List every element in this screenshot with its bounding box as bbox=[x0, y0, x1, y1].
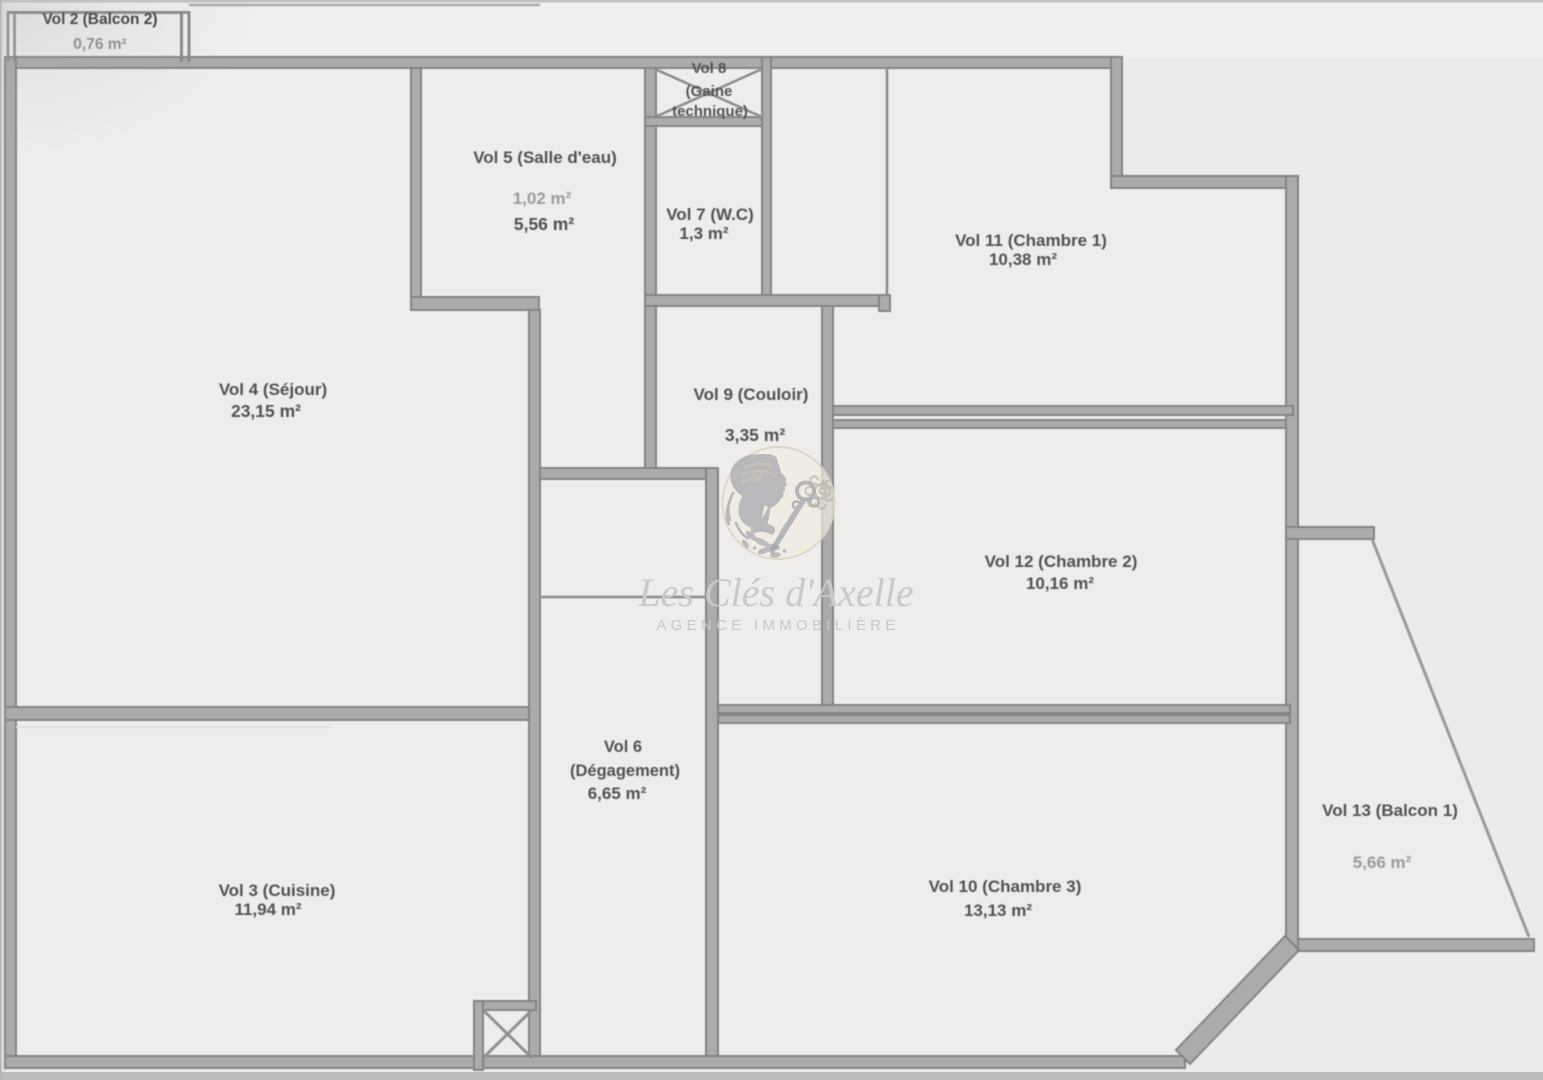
svg-text:Vol 11 (Chambre 1): Vol 11 (Chambre 1) bbox=[955, 231, 1107, 250]
svg-text:Vol 13 (Balcon 1): Vol 13 (Balcon 1) bbox=[1322, 801, 1458, 820]
svg-text:Vol 5 (Salle d'eau): Vol 5 (Salle d'eau) bbox=[473, 148, 617, 167]
svg-text:Vol 12 (Chambre 2): Vol 12 (Chambre 2) bbox=[985, 552, 1138, 571]
svg-text:3,35 m²: 3,35 m² bbox=[725, 425, 785, 445]
svg-text:Vol 4 (Séjour): Vol 4 (Séjour) bbox=[219, 380, 327, 399]
svg-text:(Gaine: (Gaine bbox=[686, 83, 733, 100]
svg-text:Vol 7 (W.C): Vol 7 (W.C) bbox=[666, 205, 754, 224]
svg-text:11,94 m²: 11,94 m² bbox=[234, 900, 301, 919]
svg-text:5,56 m²: 5,56 m² bbox=[514, 214, 574, 234]
svg-text:23,15 m²: 23,15 m² bbox=[231, 401, 301, 421]
svg-text:Vol 9 (Couloir): Vol 9 (Couloir) bbox=[694, 385, 809, 404]
svg-text:Les Clés d'Axelle: Les Clés d'Axelle bbox=[637, 570, 913, 615]
svg-text:Vol 8: Vol 8 bbox=[692, 60, 727, 77]
svg-text:13,13 m²: 13,13 m² bbox=[964, 901, 1032, 920]
svg-text:5,66 m²: 5,66 m² bbox=[1353, 853, 1412, 872]
svg-text:technique): technique) bbox=[672, 103, 748, 120]
svg-text:6,65 m²: 6,65 m² bbox=[588, 784, 647, 803]
svg-text:10,16 m²: 10,16 m² bbox=[1026, 574, 1094, 593]
svg-text:Vol 10 (Chambre 3): Vol 10 (Chambre 3) bbox=[929, 877, 1082, 896]
svg-text:Vol 6: Vol 6 bbox=[604, 738, 642, 756]
svg-text:1,02 m²: 1,02 m² bbox=[513, 189, 572, 208]
svg-text:1,3 m²: 1,3 m² bbox=[679, 224, 728, 243]
svg-text:(Dégagement): (Dégagement) bbox=[570, 762, 680, 780]
svg-text:10,38 m²: 10,38 m² bbox=[989, 250, 1057, 269]
svg-text:Vol 3 (Cuisine): Vol 3 (Cuisine) bbox=[219, 881, 336, 900]
svg-text:AGENCE IMMOBILIÈRE: AGENCE IMMOBILIÈRE bbox=[656, 617, 899, 634]
